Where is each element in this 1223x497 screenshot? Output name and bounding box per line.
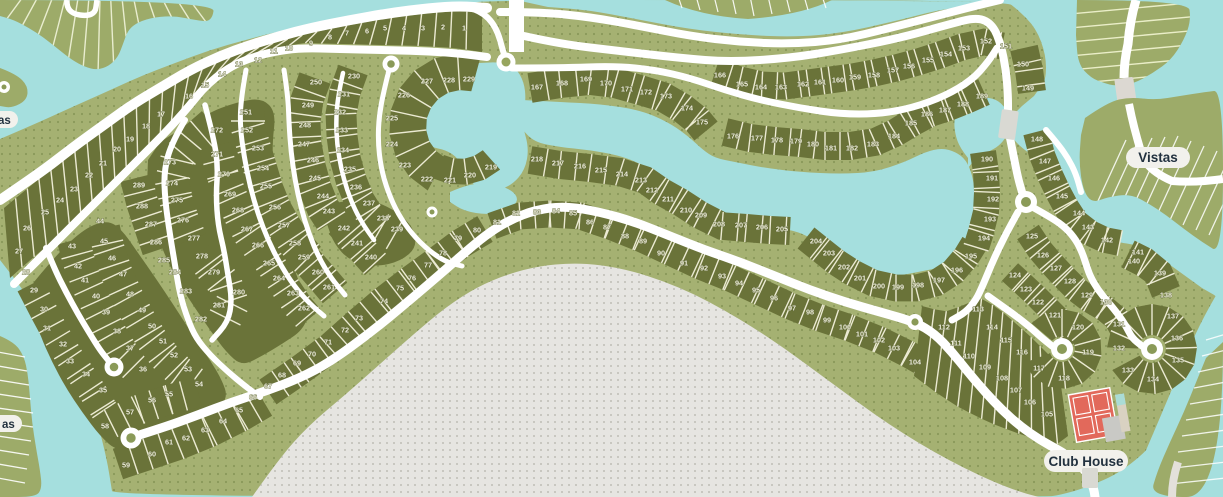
svg-text:268: 268 <box>232 206 244 215</box>
svg-text:224: 224 <box>386 140 399 149</box>
svg-text:170: 170 <box>600 79 612 88</box>
svg-text:226: 226 <box>398 91 410 100</box>
svg-text:280: 280 <box>233 288 245 297</box>
svg-text:233: 233 <box>336 126 348 135</box>
svg-text:79: 79 <box>454 234 462 243</box>
svg-text:133: 133 <box>1122 366 1134 375</box>
svg-text:65: 65 <box>235 406 243 415</box>
svg-text:68: 68 <box>278 371 286 380</box>
svg-text:13: 13 <box>235 60 243 69</box>
svg-text:180: 180 <box>807 140 819 149</box>
svg-text:155: 155 <box>922 56 934 65</box>
svg-text:189: 189 <box>976 92 988 101</box>
svg-text:213: 213 <box>635 176 647 185</box>
svg-text:152: 152 <box>980 37 992 46</box>
svg-text:14: 14 <box>218 70 227 79</box>
svg-text:88: 88 <box>621 232 629 241</box>
svg-text:3: 3 <box>421 24 425 33</box>
svg-text:177: 177 <box>751 134 763 143</box>
svg-text:5: 5 <box>383 24 387 33</box>
svg-text:174: 174 <box>681 104 694 113</box>
svg-text:16: 16 <box>185 92 193 101</box>
svg-text:47: 47 <box>119 270 127 279</box>
svg-text:207: 207 <box>735 221 747 230</box>
svg-text:21: 21 <box>99 159 107 168</box>
svg-text:49: 49 <box>138 306 146 315</box>
svg-text:2: 2 <box>441 23 445 32</box>
svg-text:254: 254 <box>257 164 270 173</box>
svg-text:30: 30 <box>40 305 48 314</box>
svg-text:185: 185 <box>905 119 917 128</box>
svg-text:107: 107 <box>1010 386 1022 395</box>
svg-text:42: 42 <box>74 262 82 271</box>
svg-text:286: 286 <box>150 238 162 247</box>
svg-text:158: 158 <box>868 71 880 80</box>
svg-text:255: 255 <box>260 182 272 191</box>
svg-text:139: 139 <box>1154 269 1166 278</box>
svg-text:115: 115 <box>1000 336 1012 345</box>
svg-text:8: 8 <box>328 33 332 42</box>
svg-text:60: 60 <box>148 450 156 459</box>
svg-text:159: 159 <box>849 73 861 82</box>
svg-text:140: 140 <box>1128 257 1140 266</box>
svg-text:277: 277 <box>188 234 200 243</box>
svg-text:220: 220 <box>464 171 476 180</box>
svg-text:59: 59 <box>122 461 130 470</box>
svg-text:41: 41 <box>81 276 89 285</box>
svg-text:11: 11 <box>270 47 278 56</box>
svg-text:249: 249 <box>302 101 314 110</box>
svg-text:as: as <box>0 115 11 127</box>
svg-text:191: 191 <box>986 174 998 183</box>
svg-text:116: 116 <box>1016 348 1028 357</box>
svg-text:99: 99 <box>823 316 831 325</box>
svg-text:64: 64 <box>219 417 228 426</box>
svg-text:216: 216 <box>574 162 586 171</box>
svg-text:150: 150 <box>1017 60 1029 69</box>
svg-text:193: 193 <box>984 215 996 224</box>
svg-text:32: 32 <box>59 340 67 349</box>
svg-text:87: 87 <box>603 223 611 232</box>
svg-text:143: 143 <box>1082 223 1094 232</box>
svg-text:284: 284 <box>169 268 182 277</box>
svg-text:67: 67 <box>264 382 272 391</box>
svg-text:119: 119 <box>1082 348 1094 357</box>
svg-text:135: 135 <box>1172 356 1184 365</box>
svg-text:58: 58 <box>101 422 109 431</box>
svg-text:194: 194 <box>978 234 991 243</box>
svg-text:6: 6 <box>365 27 369 36</box>
svg-text:84: 84 <box>552 207 561 216</box>
svg-text:231: 231 <box>338 90 350 99</box>
svg-text:85: 85 <box>569 209 577 218</box>
svg-text:206: 206 <box>756 223 768 232</box>
svg-text:22: 22 <box>85 171 93 180</box>
svg-text:109: 109 <box>979 363 991 372</box>
svg-text:228: 228 <box>443 76 455 85</box>
svg-text:266: 266 <box>252 241 264 250</box>
svg-text:29: 29 <box>30 286 38 295</box>
svg-text:188: 188 <box>957 100 969 109</box>
svg-text:136: 136 <box>1171 334 1183 343</box>
svg-text:199: 199 <box>892 283 904 292</box>
svg-text:45: 45 <box>100 237 108 246</box>
svg-text:256: 256 <box>269 203 281 212</box>
svg-text:108: 108 <box>996 374 1008 383</box>
svg-text:252: 252 <box>241 126 253 135</box>
svg-text:251: 251 <box>240 108 252 117</box>
svg-text:239: 239 <box>391 225 403 234</box>
svg-text:273: 273 <box>164 158 176 167</box>
svg-text:172: 172 <box>640 88 652 97</box>
svg-text:196: 196 <box>951 266 963 275</box>
svg-text:167: 167 <box>531 83 543 92</box>
svg-text:149: 149 <box>1022 84 1034 93</box>
svg-text:221: 221 <box>444 176 456 185</box>
svg-text:144: 144 <box>1073 209 1086 218</box>
svg-text:171: 171 <box>621 85 633 94</box>
svg-text:91: 91 <box>680 259 688 268</box>
svg-text:105: 105 <box>1041 410 1053 419</box>
svg-text:246: 246 <box>307 156 319 165</box>
svg-text:243: 243 <box>323 207 335 216</box>
svg-text:25: 25 <box>41 208 49 217</box>
svg-text:43: 43 <box>68 242 76 251</box>
svg-text:126: 126 <box>1037 251 1049 260</box>
svg-text:245: 245 <box>309 174 321 183</box>
svg-text:271: 271 <box>211 150 223 159</box>
svg-text:40: 40 <box>92 292 100 301</box>
svg-text:81: 81 <box>493 218 501 227</box>
svg-text:241: 241 <box>351 239 363 248</box>
svg-text:179: 179 <box>790 137 802 146</box>
svg-text:27: 27 <box>15 247 23 256</box>
svg-text:12: 12 <box>254 56 262 65</box>
svg-text:253: 253 <box>252 144 264 153</box>
svg-text:10: 10 <box>285 44 293 53</box>
svg-text:205: 205 <box>776 225 788 234</box>
svg-text:75: 75 <box>396 284 404 293</box>
svg-text:26: 26 <box>23 224 31 233</box>
svg-text:53: 53 <box>184 365 192 374</box>
svg-text:121: 121 <box>1049 311 1061 320</box>
svg-text:289: 289 <box>133 181 145 190</box>
svg-text:209: 209 <box>695 211 707 220</box>
svg-text:258: 258 <box>289 239 301 248</box>
svg-text:31: 31 <box>43 324 51 333</box>
svg-text:163: 163 <box>775 83 787 92</box>
svg-text:118: 118 <box>1058 374 1070 383</box>
svg-text:218: 218 <box>531 155 543 164</box>
svg-text:225: 225 <box>386 114 398 123</box>
svg-text:164: 164 <box>755 83 768 92</box>
svg-text:61: 61 <box>165 438 173 447</box>
svg-text:169: 169 <box>580 75 592 84</box>
svg-text:55: 55 <box>165 390 173 399</box>
svg-text:128: 128 <box>1064 277 1076 286</box>
svg-text:217: 217 <box>552 159 564 168</box>
svg-text:71: 71 <box>324 338 332 347</box>
svg-text:142: 142 <box>1101 236 1113 245</box>
svg-text:222: 222 <box>421 175 433 184</box>
svg-text:90: 90 <box>657 249 665 258</box>
svg-text:234: 234 <box>337 146 350 155</box>
svg-text:39: 39 <box>102 308 110 317</box>
svg-text:48: 48 <box>126 290 134 299</box>
svg-text:287: 287 <box>145 220 157 229</box>
svg-text:186: 186 <box>921 110 933 119</box>
svg-text:157: 157 <box>887 66 899 75</box>
svg-text:166: 166 <box>714 71 726 80</box>
svg-text:72: 72 <box>341 326 349 335</box>
svg-text:111: 111 <box>950 339 961 348</box>
svg-text:114: 114 <box>986 323 999 332</box>
svg-text:9: 9 <box>309 39 313 48</box>
svg-text:56: 56 <box>148 396 156 405</box>
svg-text:69: 69 <box>293 359 301 368</box>
svg-text:102: 102 <box>873 336 885 345</box>
svg-text:235: 235 <box>344 165 356 174</box>
svg-text:204: 204 <box>810 237 823 246</box>
svg-text:98: 98 <box>806 308 814 317</box>
svg-text:264: 264 <box>273 274 286 283</box>
svg-text:244: 244 <box>317 192 330 201</box>
svg-text:259: 259 <box>298 253 310 262</box>
svg-text:94: 94 <box>735 279 744 288</box>
svg-text:236: 236 <box>350 183 362 192</box>
svg-text:281: 281 <box>213 301 225 310</box>
svg-text:275: 275 <box>171 196 183 205</box>
svg-text:62: 62 <box>182 434 190 443</box>
svg-text:274: 274 <box>166 179 179 188</box>
svg-text:66: 66 <box>249 393 257 402</box>
svg-text:230: 230 <box>348 72 360 81</box>
svg-text:200: 200 <box>873 282 885 291</box>
svg-text:54: 54 <box>195 380 204 389</box>
svg-text:198: 198 <box>912 281 924 290</box>
svg-text:156: 156 <box>903 62 915 71</box>
svg-text:97: 97 <box>788 304 796 313</box>
svg-text:211: 211 <box>662 195 674 204</box>
svg-text:34: 34 <box>82 370 91 379</box>
svg-text:78: 78 <box>439 249 447 258</box>
svg-text:76: 76 <box>408 274 416 283</box>
svg-text:129: 129 <box>1081 291 1093 300</box>
svg-text:192: 192 <box>987 195 999 204</box>
svg-text:278: 278 <box>196 252 208 261</box>
svg-text:89: 89 <box>639 237 647 246</box>
svg-text:202: 202 <box>838 263 850 272</box>
svg-text:122: 122 <box>1032 298 1044 307</box>
svg-text:124: 124 <box>1009 271 1022 280</box>
svg-text:267: 267 <box>241 225 253 234</box>
svg-text:269: 269 <box>224 190 236 199</box>
svg-text:238: 238 <box>377 214 389 223</box>
svg-text:183: 183 <box>867 140 879 149</box>
svg-text:229: 229 <box>463 75 475 84</box>
svg-text:Vistas: Vistas <box>1138 150 1178 165</box>
svg-text:263: 263 <box>287 289 299 298</box>
svg-text:232: 232 <box>334 108 346 117</box>
svg-text:227: 227 <box>421 77 433 86</box>
svg-text:210: 210 <box>680 206 692 215</box>
svg-text:176: 176 <box>727 132 739 141</box>
svg-text:250: 250 <box>310 78 322 87</box>
svg-text:77: 77 <box>424 261 432 270</box>
svg-text:95: 95 <box>752 286 760 295</box>
svg-text:247: 247 <box>298 140 310 149</box>
svg-text:134: 134 <box>1147 375 1160 384</box>
svg-text:23: 23 <box>70 185 78 194</box>
svg-text:153: 153 <box>958 44 970 53</box>
svg-text:113: 113 <box>972 305 984 314</box>
svg-text:242: 242 <box>338 224 350 233</box>
svg-text:36: 36 <box>139 365 147 374</box>
svg-text:215: 215 <box>595 166 607 175</box>
svg-text:195: 195 <box>965 252 977 261</box>
svg-text:51: 51 <box>159 337 167 346</box>
svg-text:117: 117 <box>1033 364 1045 373</box>
svg-text:240: 240 <box>365 253 377 262</box>
svg-text:262: 262 <box>298 304 310 313</box>
svg-text:110: 110 <box>963 352 975 361</box>
svg-text:83: 83 <box>533 208 541 217</box>
svg-text:18: 18 <box>142 122 150 131</box>
svg-text:288: 288 <box>136 202 148 211</box>
svg-text:73: 73 <box>355 314 363 323</box>
svg-text:123: 123 <box>1020 285 1032 294</box>
svg-text:160: 160 <box>832 76 844 85</box>
svg-text:276: 276 <box>177 216 189 225</box>
svg-text:74: 74 <box>380 297 389 306</box>
svg-text:197: 197 <box>933 276 945 285</box>
svg-text:265: 265 <box>263 259 275 268</box>
svg-text:147: 147 <box>1039 157 1051 166</box>
svg-text:137: 137 <box>1167 312 1179 321</box>
svg-text:190: 190 <box>981 155 993 164</box>
svg-text:154: 154 <box>940 50 953 59</box>
svg-text:104: 104 <box>909 358 922 367</box>
svg-text:214: 214 <box>616 170 629 179</box>
svg-text:130: 130 <box>1100 298 1112 307</box>
svg-text:285: 285 <box>158 256 170 265</box>
svg-text:1: 1 <box>462 24 466 33</box>
svg-text:103: 103 <box>888 344 900 353</box>
svg-text:96: 96 <box>770 294 778 303</box>
svg-text:184: 184 <box>888 132 901 141</box>
svg-text:52: 52 <box>170 351 178 360</box>
svg-text:145: 145 <box>1056 192 1068 201</box>
svg-text:272: 272 <box>211 126 223 135</box>
svg-text:57: 57 <box>126 408 134 417</box>
svg-text:82: 82 <box>512 209 520 218</box>
svg-text:178: 178 <box>771 136 783 145</box>
svg-text:125: 125 <box>1026 232 1038 241</box>
svg-text:86: 86 <box>586 218 594 227</box>
svg-text:201: 201 <box>854 274 866 283</box>
svg-text:148: 148 <box>1031 135 1043 144</box>
svg-text:28: 28 <box>22 268 30 277</box>
svg-text:7: 7 <box>345 29 349 38</box>
svg-text:44: 44 <box>96 217 105 226</box>
svg-text:20: 20 <box>113 145 121 154</box>
svg-text:127: 127 <box>1050 264 1062 273</box>
svg-text:257: 257 <box>278 221 290 230</box>
svg-text:237: 237 <box>363 199 375 208</box>
svg-text:17: 17 <box>157 110 165 119</box>
svg-text:80: 80 <box>473 226 481 235</box>
svg-text:50: 50 <box>148 322 156 331</box>
svg-text:112: 112 <box>938 323 950 332</box>
svg-text:187: 187 <box>939 106 951 115</box>
svg-text:100: 100 <box>839 323 851 332</box>
svg-text:162: 162 <box>797 80 809 89</box>
svg-text:120: 120 <box>1072 323 1084 332</box>
svg-text:181: 181 <box>825 144 837 153</box>
svg-text:283: 283 <box>180 287 192 296</box>
svg-text:261: 261 <box>323 283 335 292</box>
svg-text:46: 46 <box>108 254 116 263</box>
svg-text:33: 33 <box>66 357 74 366</box>
svg-text:138: 138 <box>1160 291 1172 300</box>
svg-text:24: 24 <box>56 196 65 205</box>
svg-text:146: 146 <box>1048 174 1060 183</box>
svg-text:19: 19 <box>126 135 134 144</box>
svg-text:168: 168 <box>556 79 568 88</box>
svg-text:279: 279 <box>208 268 220 277</box>
svg-text:37: 37 <box>126 344 134 353</box>
svg-text:219: 219 <box>485 163 497 172</box>
svg-text:282: 282 <box>195 315 207 324</box>
svg-text:203: 203 <box>823 249 835 258</box>
svg-text:260: 260 <box>312 268 324 277</box>
svg-text:270: 270 <box>218 170 230 179</box>
svg-text:35: 35 <box>99 386 107 395</box>
svg-text:175: 175 <box>696 118 708 127</box>
svg-text:101: 101 <box>856 330 868 339</box>
svg-text:151: 151 <box>1000 42 1012 51</box>
svg-text:132: 132 <box>1113 344 1125 353</box>
svg-text:208: 208 <box>713 220 725 229</box>
svg-text:212: 212 <box>646 186 658 195</box>
svg-text:Club House: Club House <box>1048 454 1123 469</box>
svg-text:182: 182 <box>846 144 858 153</box>
svg-text:70: 70 <box>308 350 316 359</box>
svg-text:141: 141 <box>1132 248 1144 257</box>
svg-text:161: 161 <box>814 78 826 87</box>
svg-text:106: 106 <box>1024 398 1036 407</box>
svg-text:92: 92 <box>700 264 708 273</box>
svg-text:165: 165 <box>736 80 748 89</box>
svg-text:248: 248 <box>299 121 311 130</box>
svg-text:93: 93 <box>718 272 726 281</box>
svg-text:as: as <box>2 419 15 431</box>
svg-text:38: 38 <box>113 327 121 336</box>
svg-text:223: 223 <box>399 161 411 170</box>
svg-text:63: 63 <box>201 426 209 435</box>
svg-text:15: 15 <box>201 81 209 90</box>
svg-text:131: 131 <box>1113 320 1125 329</box>
svg-text:173: 173 <box>660 92 672 101</box>
